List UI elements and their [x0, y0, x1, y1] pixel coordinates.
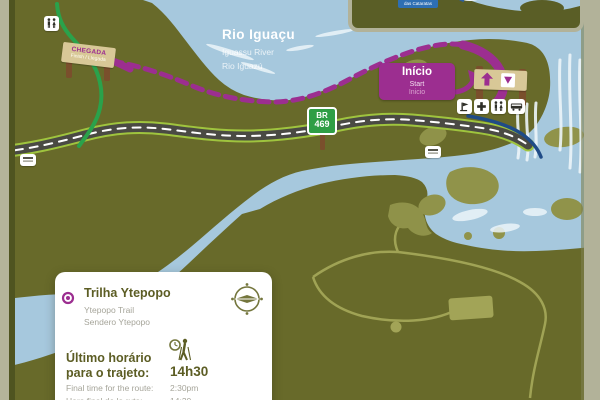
trail-direction-glyphs	[474, 69, 528, 91]
river-label-es: Rio Iguazú	[222, 62, 295, 71]
schedule-time-es: 14:30	[170, 396, 191, 400]
trail-name-es: Sendero Ytepopo	[84, 317, 150, 327]
inicio-panel: Início Start Inicio	[379, 63, 455, 100]
inicio-label-es: Inicio	[409, 89, 425, 97]
schedule-label-en: Final time for the route:	[66, 383, 153, 393]
lookout-icon	[457, 99, 472, 114]
trail-info-card: Trilha Ytepopo Ytepopo Trail Sendero Yte…	[55, 272, 272, 400]
road-sign-br469: BR 469	[307, 107, 337, 135]
road-sign-number: 469	[314, 120, 329, 129]
lookout-glyph	[458, 100, 471, 113]
schedule-label-pt-1: Último horário	[66, 351, 151, 365]
inicio-label-en: Start	[410, 81, 425, 89]
inset-label: das Cataratas	[398, 0, 438, 8]
inset-map: das Cataratas	[348, 0, 584, 32]
inset-map-art	[352, 0, 580, 28]
frame-edge-shadow	[581, 0, 584, 400]
trail-map: Rio Iguaçu Iguassu River Rio Iguazú CHEG…	[0, 0, 600, 400]
frame-left	[0, 0, 9, 400]
schedule-time-en: 2:30pm	[170, 383, 198, 393]
restroom-icon-2	[491, 99, 506, 114]
bus-icon	[508, 99, 525, 114]
trail-marker-icon	[60, 290, 76, 306]
trail-name-en: Ytepopo Trail	[84, 305, 134, 315]
bus-glyph	[509, 100, 524, 113]
frame-right	[584, 0, 600, 400]
river-label-pt: Rio Iguaçu	[222, 28, 295, 42]
trail-name-pt: Trilha Ytepopo	[84, 286, 171, 300]
river-label-en: Iguassu River	[222, 48, 295, 57]
compass-icon	[227, 279, 267, 319]
river-label: Rio Iguaçu Iguassu River Rio Iguazú	[222, 28, 295, 71]
first-aid-glyph	[475, 100, 488, 113]
hiker-clock-icon	[167, 336, 195, 364]
restroom-icon	[44, 16, 59, 31]
building-footprint	[448, 295, 493, 320]
schedule-label-es: Hora final de la ruta:	[66, 396, 143, 400]
restroom-glyph-2	[492, 100, 505, 113]
bus-stop-glyph-east	[427, 148, 439, 156]
schedule-time-pt: 14h30	[170, 364, 208, 379]
bus-stop-glyph-west	[22, 156, 34, 164]
inicio-label-pt: Início	[402, 66, 432, 79]
schedule-label-pt-2: para o trajeto:	[66, 366, 149, 380]
frame-left-shadow	[9, 0, 15, 400]
first-aid-icon	[474, 99, 489, 114]
bus-stop-sign-east	[425, 146, 441, 158]
footpath-node	[391, 322, 402, 333]
bus-stop-sign-west	[20, 154, 36, 166]
trail-direction-sign	[474, 69, 528, 91]
restroom-glyph	[45, 17, 58, 30]
